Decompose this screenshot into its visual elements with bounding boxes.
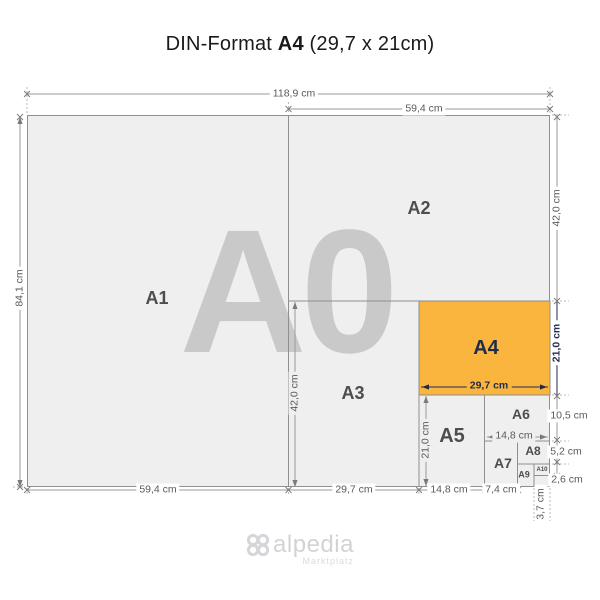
dim-bottom-a10: 3,7 cm bbox=[535, 485, 548, 523]
sheet-label-a1: A1 bbox=[145, 289, 168, 307]
brand-logo: alpedia Marktplatz bbox=[246, 533, 354, 566]
dim-right-a10: 2,6 cm bbox=[548, 474, 586, 487]
sheet-label-a8: A8 bbox=[525, 445, 540, 457]
dim-bottom-a3: 29,7 cm bbox=[332, 484, 375, 497]
dim-inner-a3-height: 42,0 cm bbox=[289, 371, 302, 414]
dim-bottom-a7: 7,4 cm bbox=[482, 484, 520, 497]
title-size: (29,7 x 21cm) bbox=[310, 33, 435, 55]
dim-bottom-a1: 59,4 cm bbox=[136, 484, 179, 497]
sheet-label-a3: A3 bbox=[341, 384, 364, 402]
logo-text: alpedia Marktplatz bbox=[273, 533, 354, 566]
dim-top-full: 118,9 cm bbox=[270, 88, 318, 101]
dim-top-right: 59,4 cm bbox=[402, 103, 445, 116]
logo-wordmark: alpedia bbox=[273, 533, 354, 557]
title-prefix: DIN-Format bbox=[166, 33, 272, 55]
page-title: DIN-Format A4 (29,7 x 21cm) bbox=[0, 33, 600, 56]
sheet-label-a2: A2 bbox=[407, 199, 430, 217]
dim-right-a4: 21,0 cm bbox=[551, 321, 564, 366]
sheet-label-a10: A10 bbox=[536, 467, 547, 473]
sheet-label-a6: A6 bbox=[512, 407, 530, 421]
sheet-label-a9: A9 bbox=[518, 471, 530, 480]
title-format: A4 bbox=[278, 33, 304, 55]
sheet-label-a7: A7 bbox=[494, 456, 512, 470]
dim-inner-a5-height: 21,0 cm bbox=[420, 418, 433, 461]
a0-watermark: A0 bbox=[180, 204, 393, 380]
dim-right-a2: 42,0 cm bbox=[551, 186, 564, 229]
dim-inner-a6-width: 14,8 cm bbox=[492, 430, 535, 443]
dim-right-a8: 5,2 cm bbox=[547, 446, 585, 459]
dim-left-height: 84,1 cm bbox=[14, 266, 27, 309]
dim-bottom-a5: 14,8 cm bbox=[427, 484, 470, 497]
din-format-diagram: DIN-Format A4 (29,7 x 21cm) A0 bbox=[0, 0, 600, 600]
sheet-label-a4: A4 bbox=[473, 338, 499, 358]
dim-right-a6: 10,5 cm bbox=[547, 410, 590, 423]
sheet-label-a5: A5 bbox=[439, 426, 465, 446]
dim-inner-a4-width: 29,7 cm bbox=[467, 380, 512, 393]
alpedia-flower-icon bbox=[246, 533, 270, 557]
